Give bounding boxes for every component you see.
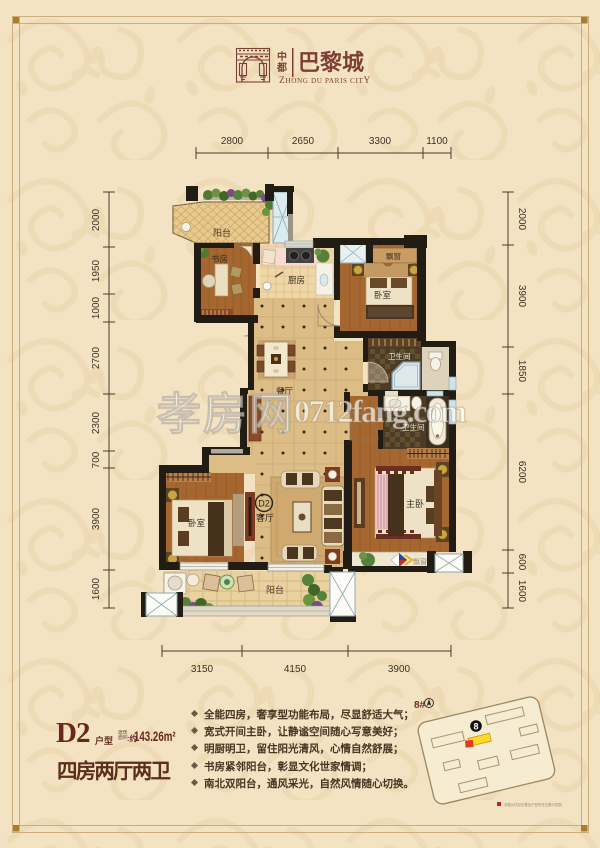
svg-text:3300: 3300 — [369, 136, 392, 147]
svg-text:都: 都 — [276, 61, 287, 74]
svg-text:巴黎城: 巴黎城 — [298, 50, 364, 75]
svg-text:4150: 4150 — [284, 664, 307, 675]
svg-text:8#: 8# — [414, 700, 426, 711]
svg-text:600: 600 — [516, 554, 527, 571]
svg-text:飘窗: 飘窗 — [386, 251, 401, 261]
svg-text:主卧: 主卧 — [406, 498, 424, 509]
svg-text:6200: 6200 — [516, 461, 527, 484]
svg-text:厨房: 厨房 — [288, 275, 305, 285]
svg-text:2000: 2000 — [516, 208, 527, 231]
svg-text:3900: 3900 — [516, 285, 527, 308]
svg-text:本图为项目位置及户型所在位置示意图: 本图为项目位置及户型所在位置示意图 — [504, 802, 562, 807]
svg-text:中: 中 — [277, 50, 287, 63]
svg-text:客厅: 客厅 — [256, 512, 274, 523]
svg-text:3150: 3150 — [191, 664, 214, 675]
svg-text:卧室: 卧室 — [188, 518, 206, 528]
svg-text:卫生间: 卫生间 — [388, 351, 411, 361]
svg-text:2300: 2300 — [91, 411, 102, 434]
svg-text:1950: 1950 — [91, 259, 102, 282]
svg-text:1600: 1600 — [91, 577, 102, 600]
svg-text:阳台: 阳台 — [266, 584, 284, 595]
svg-text:ZHONG DU PARIS CITY: ZHONG DU PARIS CITY — [279, 76, 371, 86]
svg-text:8: 8 — [473, 722, 478, 732]
svg-text:2700: 2700 — [91, 346, 102, 369]
svg-text:0712fang.com: 0712fang.com — [294, 393, 467, 429]
svg-text:3900: 3900 — [388, 664, 411, 675]
svg-text:1850: 1850 — [516, 360, 527, 383]
svg-text:D2: D2 — [258, 499, 270, 509]
svg-text:2800: 2800 — [221, 136, 244, 147]
svg-text:2650: 2650 — [292, 136, 315, 147]
svg-text:2000: 2000 — [91, 208, 102, 231]
svg-text:书房: 书房 — [211, 254, 228, 264]
svg-text:孝房网: 孝房网 — [157, 390, 295, 439]
svg-text:阳台: 阳台 — [213, 227, 231, 238]
svg-text:1000: 1000 — [91, 296, 102, 319]
svg-text:1100: 1100 — [426, 136, 448, 147]
svg-text:700: 700 — [91, 451, 102, 468]
svg-text:1600: 1600 — [516, 580, 527, 603]
svg-text:飘窗: 飘窗 — [413, 557, 427, 566]
svg-text:3900: 3900 — [91, 507, 102, 530]
svg-text:卧室: 卧室 — [374, 290, 392, 300]
